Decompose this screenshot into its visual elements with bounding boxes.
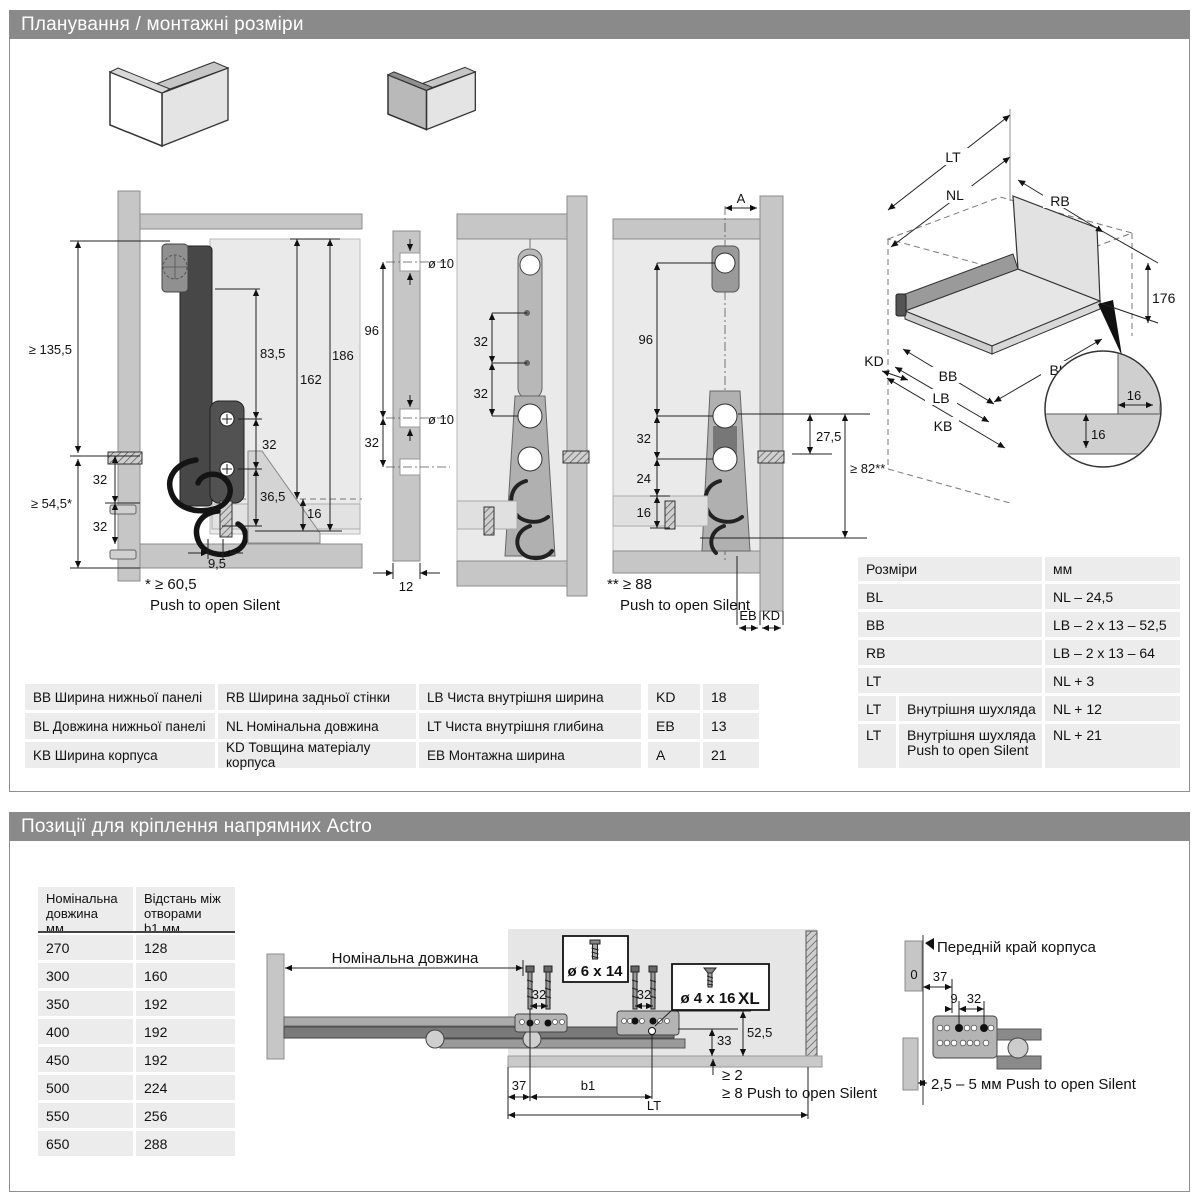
dim-186: 186 bbox=[332, 348, 354, 363]
table-row: BB Ширина нижньої панелі RB Ширина заднь… bbox=[25, 684, 641, 710]
label-nominal-length: Номінальна довжина bbox=[332, 950, 479, 967]
screw-box-6x14: ø 6 x 14 bbox=[563, 936, 628, 982]
label-lb: LB bbox=[932, 390, 949, 406]
screw-size-label: ø 4 x 16 bbox=[680, 990, 735, 1007]
dim-32: 32 bbox=[474, 334, 488, 349]
size-value: LB – 2 x 13 – 64 bbox=[1045, 640, 1180, 665]
dim-b1: b1 bbox=[581, 1078, 595, 1093]
size-value: LB – 2 x 13 – 52,5 bbox=[1045, 612, 1180, 637]
dim-A: A bbox=[737, 191, 746, 206]
length-table: Номінальна довжина мм Відстань між отвор… bbox=[38, 887, 235, 1159]
dim-275: 27,5 bbox=[816, 429, 841, 444]
section-planning: Планування / монтажні розміри bbox=[9, 10, 1190, 792]
table-cell: RB Ширина задньої стінки bbox=[218, 684, 416, 710]
label-kb: KB bbox=[934, 418, 953, 434]
dim-16: 16 bbox=[1127, 388, 1141, 403]
table-cell: BB Ширина нижньої панелі bbox=[25, 684, 215, 710]
dim-96: 96 bbox=[639, 332, 653, 347]
dim-32: 32 bbox=[637, 987, 651, 1002]
dim-12: 12 bbox=[399, 579, 413, 594]
note-push-gap: 2,5 – 5 мм Push to open Silent bbox=[931, 1076, 1137, 1093]
size-key: LT bbox=[858, 668, 1042, 693]
dim-37: 37 bbox=[933, 969, 947, 984]
length-cell: 270 bbox=[38, 935, 133, 960]
footnote-text: Push to open Silent bbox=[620, 597, 751, 614]
length-cell: 400 bbox=[38, 1019, 133, 1044]
dim-32: 32 bbox=[365, 435, 379, 450]
dim-gte8: ≥ 8 Push to open Silent bbox=[722, 1085, 878, 1102]
size-subkey: Внутрішня шухляда bbox=[899, 696, 1042, 721]
size-key: BL bbox=[858, 584, 1042, 609]
dim-32: 32 bbox=[967, 991, 981, 1006]
dim-545: ≥ 54,5* bbox=[31, 496, 72, 511]
roller-icon bbox=[426, 1030, 444, 1048]
length-cell: 550 bbox=[38, 1103, 133, 1128]
drawing-push-section: A 96 32 24 16 27,5 ≥ 82** ** ≥ 88 Push t… bbox=[607, 191, 885, 628]
dim-lt: LT bbox=[647, 1098, 661, 1113]
footnote-value: ** ≥ 88 bbox=[607, 576, 652, 593]
drawing-front-edge-detail: Передній край корпуса 0 37 9 32 2,5 – 5 … bbox=[903, 935, 1137, 1105]
dim-525: 52,5 bbox=[747, 1025, 772, 1040]
size-value: NL + 12 bbox=[1045, 696, 1180, 721]
size-value: NL + 3 bbox=[1045, 668, 1180, 693]
drawing-isometric: LT NL RB 176 KD BB LB KB BL 16 16 bbox=[864, 109, 1175, 503]
distance-cell: 256 bbox=[136, 1103, 235, 1128]
dim-16: 16 bbox=[637, 505, 651, 520]
dim-32: 32 bbox=[637, 431, 651, 446]
footnote-value: * ≥ 60,5 bbox=[145, 576, 197, 593]
table-header: Відстань між отворами b1 мм bbox=[136, 887, 235, 931]
distance-cell: 192 bbox=[136, 1019, 235, 1044]
dim-32: 32 bbox=[474, 386, 488, 401]
distance-cell: 288 bbox=[136, 1131, 235, 1156]
table-row: KB Ширина корпуса KD Товщина матеріалу к… bbox=[25, 742, 641, 768]
table-cell: LT Чиста внутрішня глибина bbox=[419, 713, 641, 739]
param-key: EB bbox=[648, 713, 700, 739]
table-header: Номінальна довжина мм bbox=[38, 887, 133, 931]
dim-37: 37 bbox=[512, 1078, 526, 1093]
size-subkey: Внутрішня шухляда Push to open Silent bbox=[899, 724, 1042, 768]
dim-height-min: ≥ 135,5 bbox=[29, 342, 72, 357]
size-key: LT bbox=[858, 724, 896, 768]
distance-cell: 192 bbox=[136, 991, 235, 1016]
param-value: 21 bbox=[703, 742, 759, 768]
label-kd: KD bbox=[762, 608, 780, 623]
length-cell: 300 bbox=[38, 963, 133, 988]
section-actro-positions: Позиції для кріплення напрямних Actro bbox=[9, 812, 1190, 1192]
drawing-rear-section: 32 32 bbox=[457, 196, 589, 596]
drawer-icon-standard bbox=[110, 62, 228, 146]
dim-16: 16 bbox=[307, 506, 321, 521]
footnote-text: Push to open Silent bbox=[150, 597, 281, 614]
table-row: BL Довжина нижньої панелі NL Номінальна … bbox=[25, 713, 641, 739]
dim-33: 33 bbox=[717, 1033, 731, 1048]
label-kd: KD bbox=[864, 353, 883, 369]
size-key: RB bbox=[858, 640, 1042, 665]
param-value: 18 bbox=[703, 684, 759, 710]
table-cell: KD Товщина матеріалу корпуса bbox=[218, 742, 416, 768]
length-cell: 500 bbox=[38, 1075, 133, 1100]
table-cell: NL Номінальна довжина bbox=[218, 713, 416, 739]
dim-32: 32 bbox=[532, 987, 546, 1002]
dim-162: 162 bbox=[300, 372, 322, 387]
table-cell: LB Чиста внутрішня ширина bbox=[419, 684, 641, 710]
label-bb: BB bbox=[939, 368, 958, 384]
size-value: NL + 21 bbox=[1045, 724, 1180, 768]
distance-cell: 128 bbox=[136, 935, 235, 960]
dim-95: 9,5 bbox=[208, 556, 226, 571]
dim-dia10: ø 10 bbox=[428, 256, 454, 271]
distance-cell: 224 bbox=[136, 1075, 235, 1100]
dim-dia10: ø 10 bbox=[428, 412, 454, 427]
length-cell: 650 bbox=[38, 1131, 133, 1156]
label-rb: RB bbox=[1050, 193, 1069, 209]
drawing-drill-strip: ø 10 96 ø 10 32 12 bbox=[365, 231, 454, 594]
legend-table: BB Ширина нижньої панелі RB Ширина заднь… bbox=[25, 684, 641, 771]
drawer-icon-inner bbox=[388, 67, 475, 129]
roller-icon bbox=[1008, 1038, 1028, 1058]
detail-pointer-icon bbox=[1098, 300, 1122, 356]
param-table: KD18 EB13 A21 bbox=[648, 684, 759, 771]
param-key: KD bbox=[648, 684, 700, 710]
size-value: NL – 24,5 bbox=[1045, 584, 1180, 609]
param-value: 13 bbox=[703, 713, 759, 739]
label-nl: NL bbox=[946, 187, 964, 203]
dim-32: 32 bbox=[93, 519, 107, 534]
distance-cell: 192 bbox=[136, 1047, 235, 1072]
table-cell: BL Довжина нижньої панелі bbox=[25, 713, 215, 739]
param-key: A bbox=[648, 742, 700, 768]
dim-gte2: ≥ 2 bbox=[722, 1067, 743, 1084]
dim-16: 16 bbox=[1091, 427, 1105, 442]
size-key: BB bbox=[858, 612, 1042, 637]
label-eb: EB bbox=[739, 608, 756, 623]
distance-cell: 160 bbox=[136, 963, 235, 988]
table-header: Розміри bbox=[858, 557, 1042, 581]
dim-82: ≥ 82** bbox=[850, 461, 885, 476]
table-cell: KB Ширина корпуса bbox=[25, 742, 215, 768]
dim-365: 36,5 bbox=[260, 489, 285, 504]
label-front-edge: Передній край корпуса bbox=[937, 939, 1097, 956]
front-edge-arrow-icon bbox=[925, 938, 934, 950]
screw-size-label: ø 6 x 14 bbox=[567, 963, 623, 980]
dim-0: 0 bbox=[910, 967, 917, 982]
length-cell: 350 bbox=[38, 991, 133, 1016]
dim-176: 176 bbox=[1152, 290, 1176, 306]
drawing-runner-side: ø 6 x 14 ø 4 x 16 XL bbox=[267, 929, 878, 1119]
size-key: LT bbox=[858, 696, 896, 721]
dim-32: 32 bbox=[93, 472, 107, 487]
length-cell: 450 bbox=[38, 1047, 133, 1072]
sizes-table: Розміри мм BL NL – 24,5 BB LB – 2 x 13 –… bbox=[858, 557, 1180, 771]
dim-96: 96 bbox=[365, 323, 379, 338]
dim-32: 32 bbox=[262, 437, 276, 452]
label-lt: LT bbox=[945, 149, 961, 165]
drawing-front-section: ≥ 135,5 32 32 ≥ 54,5* 83,5 162 186 32 36… bbox=[29, 191, 362, 614]
dim-24: 24 bbox=[637, 471, 651, 486]
table-cell: EB Монтажна ширина bbox=[419, 742, 641, 768]
screw-xl-label: XL bbox=[738, 989, 760, 1008]
table-header: мм bbox=[1045, 557, 1180, 581]
roller-icon bbox=[523, 1030, 541, 1048]
dim-835: 83,5 bbox=[260, 346, 285, 361]
dim-9: 9 bbox=[950, 991, 957, 1006]
